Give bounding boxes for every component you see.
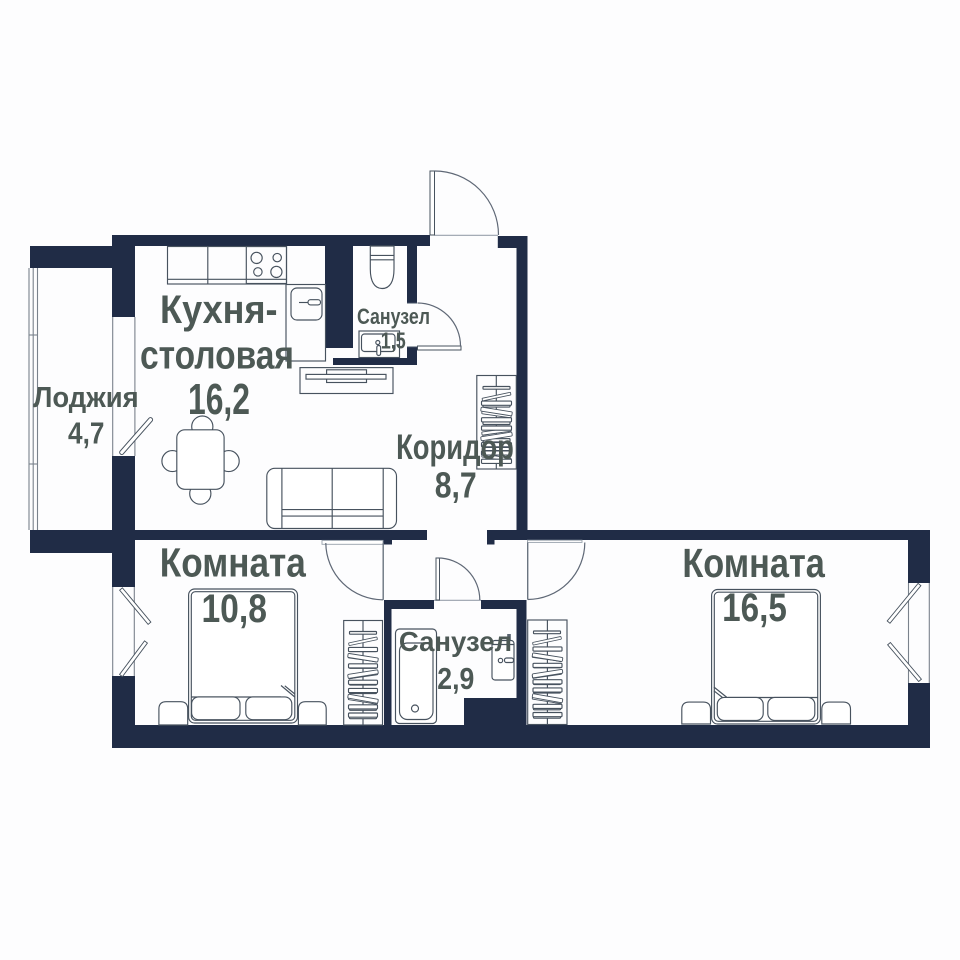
svg-text:Санузел: Санузел — [399, 626, 512, 657]
svg-text:Кухня-: Кухня- — [160, 288, 278, 332]
svg-text:Лоджия: Лоджия — [33, 382, 139, 414]
svg-text:столовая: столовая — [140, 334, 294, 378]
svg-text:1,5: 1,5 — [381, 328, 406, 354]
svg-text:16,5: 16,5 — [722, 586, 787, 630]
svg-text:8,7: 8,7 — [435, 465, 477, 506]
svg-text:10,8: 10,8 — [201, 587, 267, 631]
svg-text:2,9: 2,9 — [437, 663, 474, 696]
svg-text:Коридор: Коридор — [396, 427, 514, 467]
svg-text:Комната: Комната — [682, 540, 825, 586]
svg-text:Комната: Комната — [160, 540, 307, 586]
svg-text:Санузел: Санузел — [357, 304, 430, 329]
svg-text:4,7: 4,7 — [68, 416, 104, 451]
svg-text:16,2: 16,2 — [188, 376, 250, 424]
